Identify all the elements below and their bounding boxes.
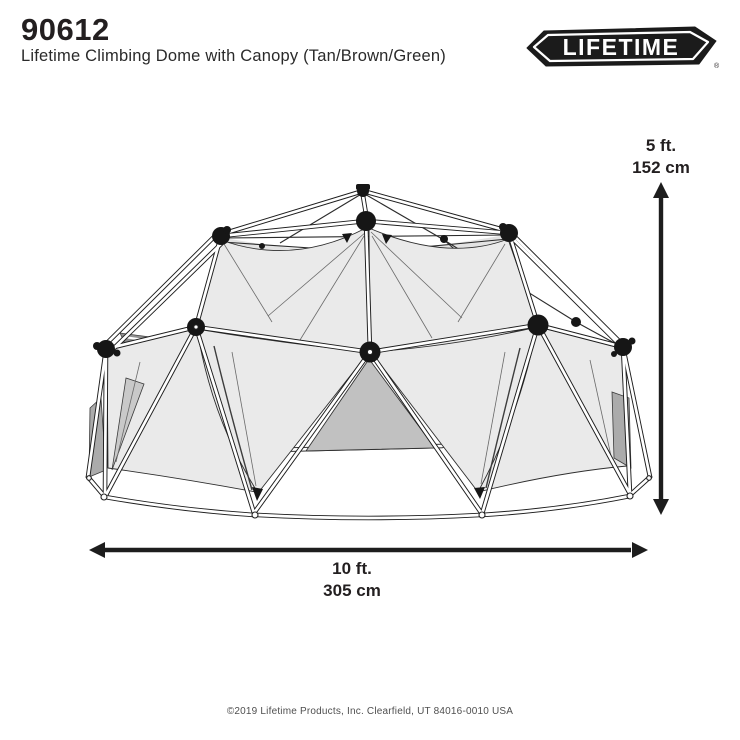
- width-imperial: 10 ft.: [277, 558, 427, 580]
- registered-trademark: ®: [714, 63, 719, 70]
- height-dimension-arrow: [653, 182, 669, 515]
- base-bolts: [87, 476, 652, 518]
- climbing-dome-diagram: LIFETIME: [0, 0, 740, 740]
- width-dimension-label: 10 ft. 305 cm: [277, 558, 427, 603]
- width-dimension-arrow: [89, 542, 648, 558]
- lifetime-logo: LIFETIME: [527, 27, 716, 66]
- canopy-tie-right: [474, 487, 485, 499]
- product-title: Lifetime Climbing Dome with Canopy (Tan/…: [21, 47, 446, 66]
- width-metric: 305 cm: [277, 580, 427, 602]
- logo-wordmark: LIFETIME: [563, 34, 680, 60]
- copyright-line: ©2019 Lifetime Products, Inc. Clearfield…: [0, 706, 740, 717]
- height-dimension-label: 5 ft. 152 cm: [611, 135, 711, 180]
- height-metric: 152 cm: [611, 157, 711, 179]
- product-spec-sheet: LIFETIME 90612 Lifetime Climbing Dome wi…: [0, 0, 740, 740]
- product-number: 90612: [21, 12, 110, 48]
- height-imperial: 5 ft.: [611, 135, 711, 157]
- canopy-panels: [89, 228, 631, 493]
